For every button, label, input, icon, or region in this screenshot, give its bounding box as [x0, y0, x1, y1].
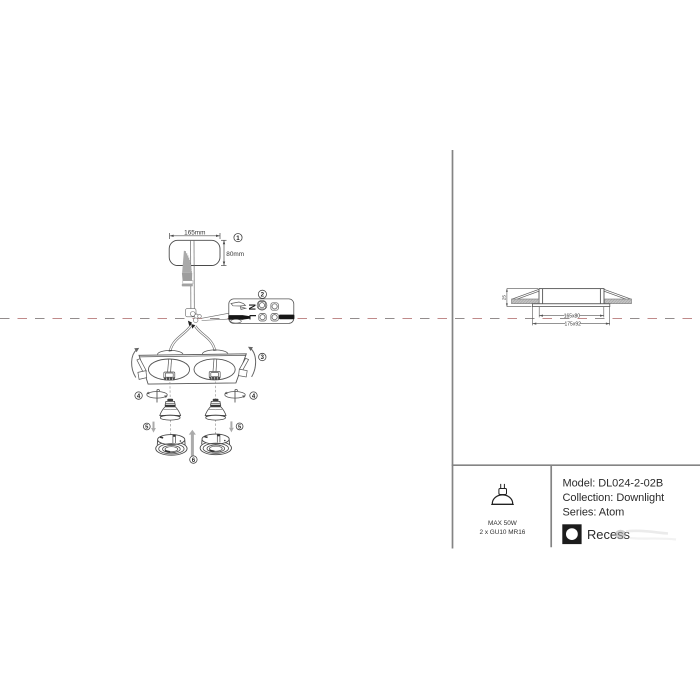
svg-text:80mm: 80mm [226, 251, 244, 258]
svg-text:Series: Atom: Series: Atom [563, 507, 625, 519]
svg-text:2: 2 [261, 292, 265, 299]
svg-text:MAX 50W: MAX 50W [488, 520, 518, 527]
svg-text:Model: DL024-2-02B: Model: DL024-2-02B [563, 478, 664, 490]
svg-text:175x92: 175x92 [564, 321, 581, 327]
svg-text:N: N [247, 304, 257, 310]
svg-text:1: 1 [236, 235, 240, 242]
svg-text:165x80: 165x80 [564, 313, 581, 319]
svg-text:165mm: 165mm [184, 230, 205, 237]
svg-text:2 x GU10 MR16: 2 x GU10 MR16 [479, 529, 525, 536]
svg-text:25: 25 [502, 295, 508, 301]
svg-text:Collection: Downlight: Collection: Downlight [563, 492, 665, 504]
